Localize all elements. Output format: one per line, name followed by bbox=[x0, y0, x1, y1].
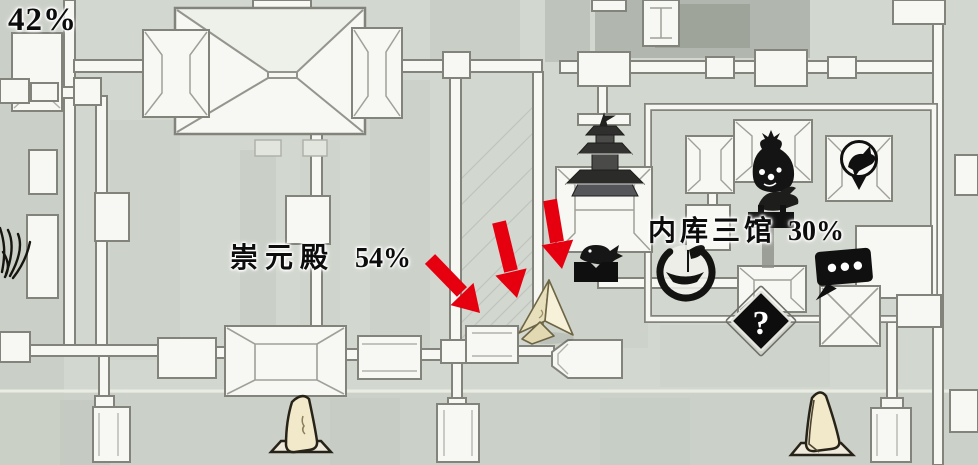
zone-completion-label: 42% bbox=[8, 2, 77, 39]
location-percent: 30% bbox=[788, 216, 844, 247]
location-label-treasury: 内库三馆30% bbox=[648, 209, 844, 249]
question-glyph: ? bbox=[753, 305, 770, 342]
location-label-chongyuan-hall: 崇元殿54% bbox=[230, 236, 411, 276]
game-map[interactable]: ? 42% 崇元殿54% bbox=[0, 0, 978, 465]
location-name: 崇元殿 bbox=[230, 243, 335, 274]
location-name: 内库三馆 bbox=[648, 216, 776, 247]
location-percent: 54% bbox=[355, 243, 411, 274]
